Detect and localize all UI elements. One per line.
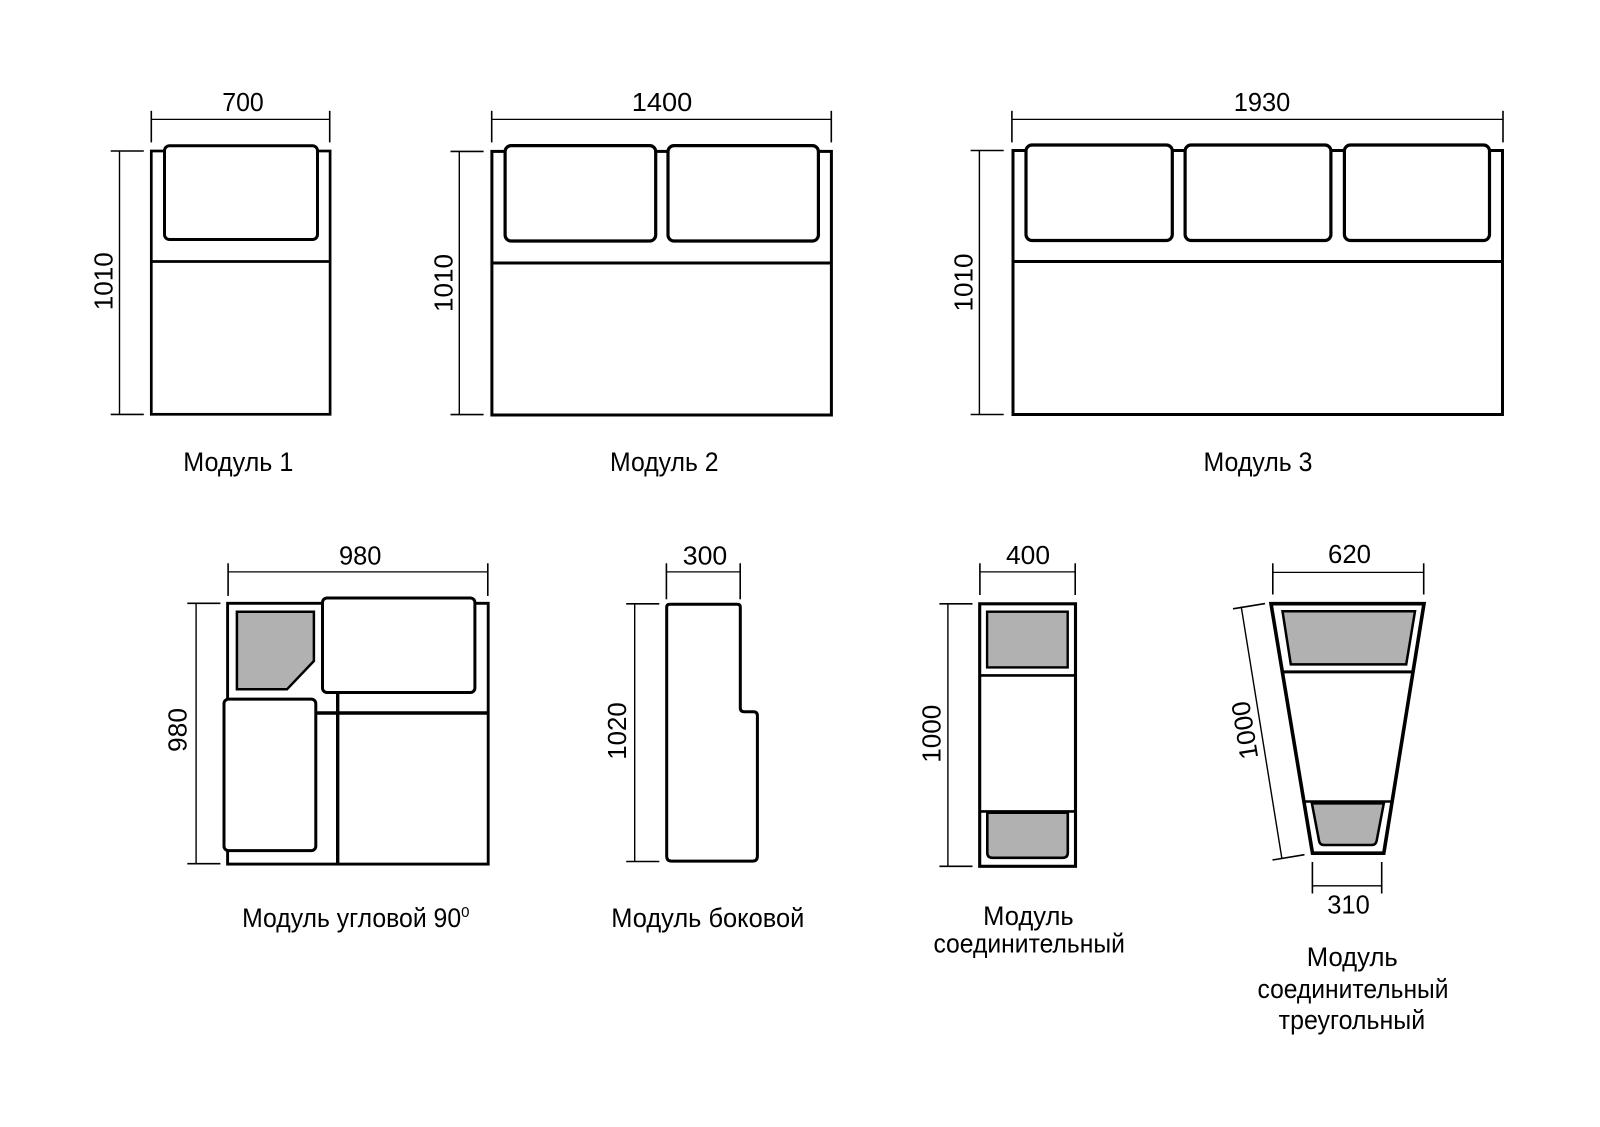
svg-text:Модуль: Модуль — [983, 901, 1074, 931]
svg-text:1400: 1400 — [632, 87, 693, 117]
svg-text:1000: 1000 — [916, 705, 946, 763]
svg-text:0: 0 — [461, 904, 469, 921]
svg-text:980: 980 — [339, 541, 382, 571]
svg-text:Модуль боковой: Модуль боковой — [611, 903, 804, 933]
svg-text:700: 700 — [222, 87, 264, 117]
svg-text:1020: 1020 — [602, 702, 632, 760]
svg-text:Модуль: Модуль — [1307, 942, 1398, 972]
svg-text:620: 620 — [1328, 539, 1371, 569]
svg-text:Модуль угловой 90: Модуль угловой 90 — [242, 903, 461, 933]
svg-text:1010: 1010 — [88, 252, 118, 310]
svg-text:Модуль 2: Модуль 2 — [610, 447, 719, 477]
svg-text:соединительный: соединительный — [1258, 974, 1449, 1004]
svg-text:980: 980 — [163, 708, 193, 752]
svg-text:300: 300 — [683, 541, 728, 571]
svg-text:400: 400 — [1006, 540, 1050, 570]
svg-text:соединительный: соединительный — [933, 929, 1125, 959]
svg-text:1010: 1010 — [948, 254, 978, 312]
svg-text:Модуль 1: Модуль 1 — [183, 447, 293, 477]
svg-text:Модуль 3: Модуль 3 — [1204, 447, 1313, 477]
svg-text:1010: 1010 — [429, 254, 459, 312]
svg-text:310: 310 — [1327, 889, 1370, 919]
svg-text:1930: 1930 — [1234, 87, 1291, 117]
svg-text:треугольный: треугольный — [1279, 1005, 1426, 1035]
